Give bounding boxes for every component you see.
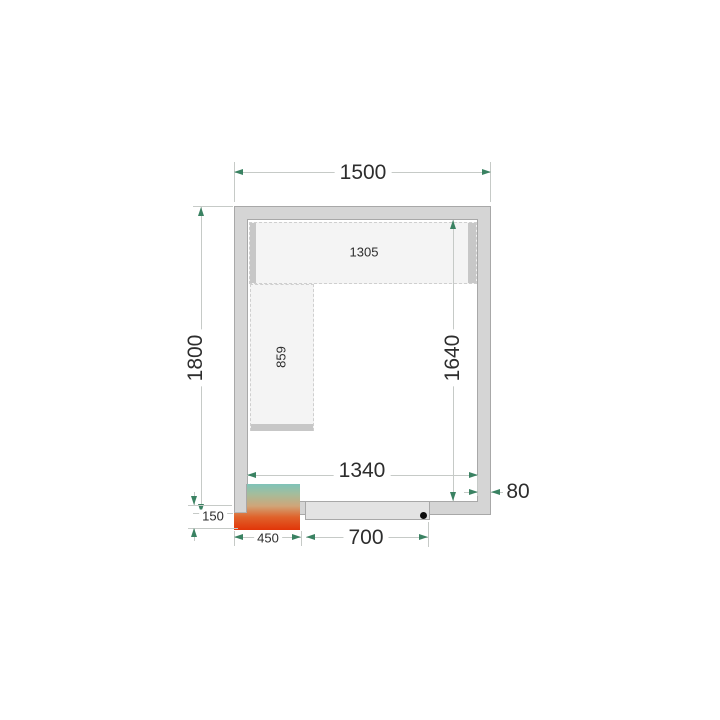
- shelf-left-label: 859: [275, 346, 290, 368]
- arrow-right-icon: [469, 472, 478, 478]
- shelf-left-bottom-support: [251, 424, 313, 431]
- arrow-left-icon: [491, 489, 500, 495]
- dim-label-outer-width: 1500: [335, 161, 392, 185]
- arrow-up-icon: [191, 528, 197, 537]
- arrow-left-icon: [247, 472, 256, 478]
- arrow-left-icon: [234, 534, 243, 540]
- wall-over-unit: [234, 484, 247, 513]
- shelf-top-left-support: [250, 223, 256, 283]
- dim-label-unit-width: 450: [254, 532, 282, 547]
- arrow-left-icon: [234, 169, 243, 175]
- arrow-right-icon: [419, 534, 428, 540]
- extension-line: [301, 531, 302, 546]
- arrow-up-icon: [198, 207, 204, 216]
- dim-label-wall-thickness: 80: [506, 480, 529, 504]
- arrow-down-icon: [450, 492, 456, 501]
- dim-label-door-width: 700: [343, 526, 388, 550]
- dim-label-outer-depth: 1800: [184, 330, 208, 387]
- extension-line: [188, 505, 232, 506]
- dim-label-inner-depth: 1640: [441, 330, 465, 387]
- arrow-up-icon: [450, 220, 456, 229]
- arrow-down-icon: [191, 496, 197, 505]
- arrow-left-icon: [306, 534, 315, 540]
- dim-label-inner-width: 1340: [334, 459, 391, 483]
- extension-line: [234, 162, 235, 202]
- floor-plan-canvas: 1305 859 1500 1800 1640 1340: [0, 0, 720, 720]
- arrow-right-icon: [292, 534, 301, 540]
- arrow-right-icon: [482, 169, 491, 175]
- door-panel: [305, 501, 430, 520]
- door-hinge-dot: [420, 512, 427, 519]
- extension-line: [428, 522, 429, 547]
- shelf-top-label: 1305: [350, 246, 379, 261]
- arrow-right-icon: [469, 489, 478, 495]
- shelf-top-right-support: [468, 223, 476, 283]
- extension-line: [490, 162, 491, 202]
- dim-label-unit-overhang: 150: [199, 510, 227, 525]
